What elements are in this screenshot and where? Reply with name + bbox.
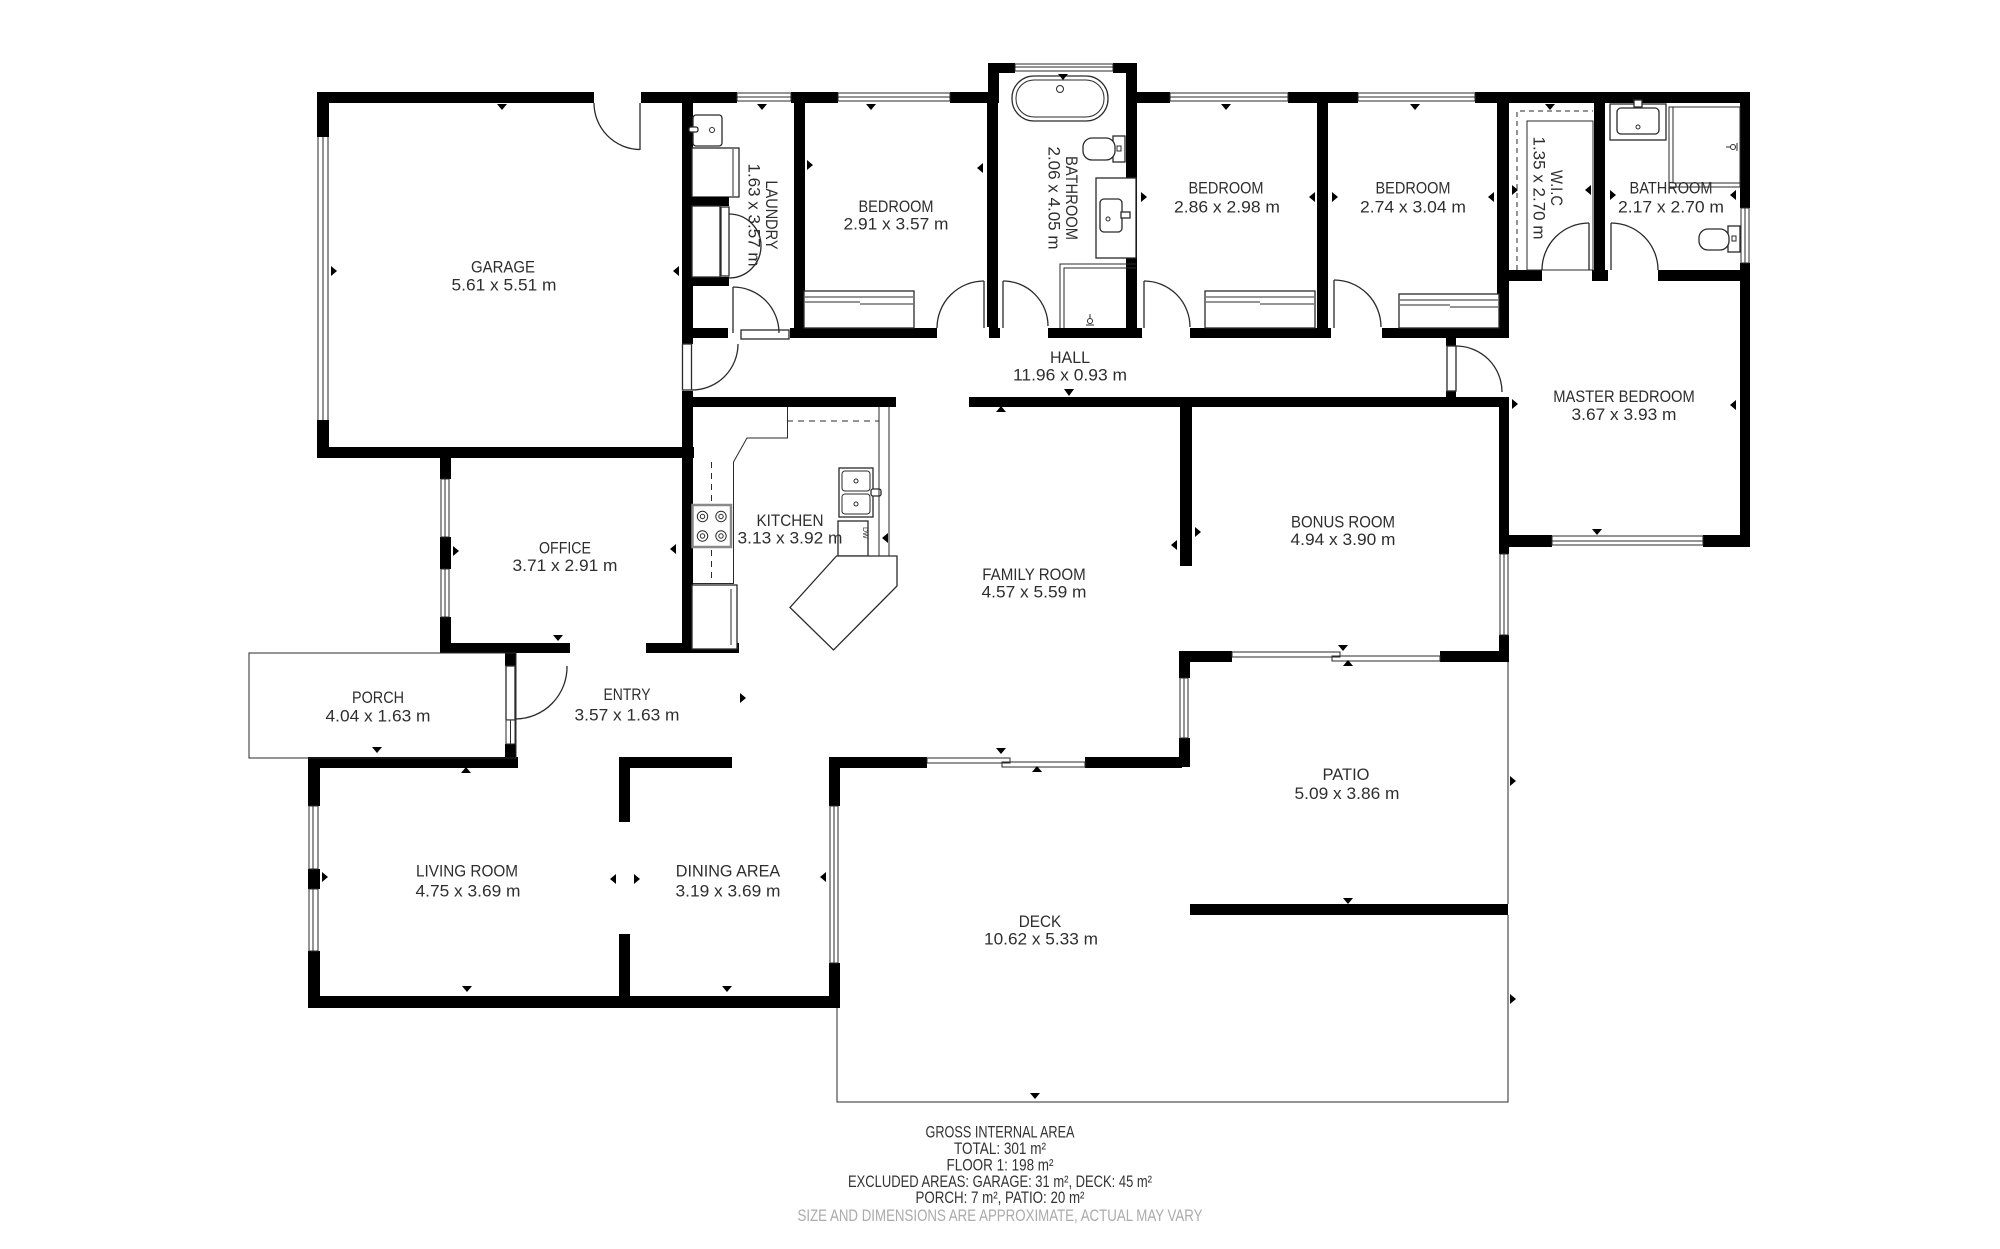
svg-text:2.74 x 3.04 m: 2.74 x 3.04 m xyxy=(1360,198,1466,216)
svg-text:2.86 x 2.98 m: 2.86 x 2.98 m xyxy=(1174,198,1280,216)
svg-text:ENTRY: ENTRY xyxy=(604,686,651,704)
svg-text:3.67 x 3.93 m: 3.67 x 3.93 m xyxy=(1572,406,1677,424)
svg-text:FAMILY ROOM: FAMILY ROOM xyxy=(982,566,1086,584)
svg-text:10.62 x 5.33 m: 10.62 x 5.33 m xyxy=(984,931,1098,949)
svg-text:PORCH: 7 m², PATIO: 20 m²: PORCH: 7 m², PATIO: 20 m² xyxy=(916,1189,1085,1207)
svg-text:DINING AREA: DINING AREA xyxy=(676,863,780,881)
svg-text:FLOOR 1: 198 m²: FLOOR 1: 198 m² xyxy=(947,1157,1055,1175)
svg-text:TOTAL: 301 m²: TOTAL: 301 m² xyxy=(954,1140,1046,1158)
svg-text:1.63 x 3.57 m: 1.63 x 3.57 m xyxy=(745,164,763,267)
svg-text:DW: DW xyxy=(861,527,868,539)
svg-text:BEDROOM: BEDROOM xyxy=(1376,180,1451,198)
svg-text:OFFICE: OFFICE xyxy=(539,540,591,558)
svg-text:BEDROOM: BEDROOM xyxy=(1189,180,1264,198)
svg-text:W.I.C: W.I.C xyxy=(1547,170,1565,206)
svg-text:3.71 x 2.91 m: 3.71 x 2.91 m xyxy=(513,557,618,575)
svg-text:HALL: HALL xyxy=(1050,349,1090,367)
svg-text:4.04 x 1.63 m: 4.04 x 1.63 m xyxy=(326,708,431,726)
svg-text:DECK: DECK xyxy=(1019,913,1062,931)
svg-text:3.19 x 3.69 m: 3.19 x 3.69 m xyxy=(676,883,781,901)
svg-text:BONUS ROOM: BONUS ROOM xyxy=(1291,514,1395,532)
svg-text:4.57 x 5.59 m: 4.57 x 5.59 m xyxy=(982,584,1087,602)
svg-text:PATIO: PATIO xyxy=(1323,766,1370,784)
svg-text:2.06 x 4.05 m: 2.06 x 4.05 m xyxy=(1045,147,1063,250)
svg-text:2.17 x 2.70 m: 2.17 x 2.70 m xyxy=(1618,198,1724,216)
svg-text:MASTER BEDROOM: MASTER BEDROOM xyxy=(1553,388,1695,406)
svg-text:BATHROOM: BATHROOM xyxy=(1062,156,1080,240)
svg-text:LIVING ROOM: LIVING ROOM xyxy=(416,863,518,881)
svg-text:BATHROOM: BATHROOM xyxy=(1630,180,1713,198)
svg-text:SIZE AND DIMENSIONS ARE APPROX: SIZE AND DIMENSIONS ARE APPROXIMATE, ACT… xyxy=(798,1206,1203,1225)
svg-text:GARAGE: GARAGE xyxy=(471,259,535,277)
svg-text:5.61 x 5.51 m: 5.61 x 5.51 m xyxy=(452,277,557,295)
svg-text:LAUNDRY: LAUNDRY xyxy=(762,181,780,250)
svg-text:11.96 x 0.93 m: 11.96 x 0.93 m xyxy=(1013,367,1127,385)
svg-text:KITCHEN: KITCHEN xyxy=(757,512,824,530)
svg-text:1.35 x 2.70 m: 1.35 x 2.70 m xyxy=(1530,137,1548,240)
svg-text:PORCH: PORCH xyxy=(352,689,404,707)
svg-text:GROSS INTERNAL AREA: GROSS INTERNAL AREA xyxy=(926,1124,1075,1142)
svg-text:4.94 x 3.90 m: 4.94 x 3.90 m xyxy=(1291,531,1396,549)
svg-text:2.91 x 3.57 m: 2.91 x 3.57 m xyxy=(844,216,949,234)
svg-text:3.13 x 3.92 m: 3.13 x 3.92 m xyxy=(738,530,843,548)
svg-text:5.09 x 3.86 m: 5.09 x 3.86 m xyxy=(1295,785,1400,803)
svg-text:BEDROOM: BEDROOM xyxy=(859,198,934,216)
svg-text:4.75 x 3.69 m: 4.75 x 3.69 m xyxy=(416,883,521,901)
svg-text:3.57 x 1.63 m: 3.57 x 1.63 m xyxy=(575,707,680,725)
